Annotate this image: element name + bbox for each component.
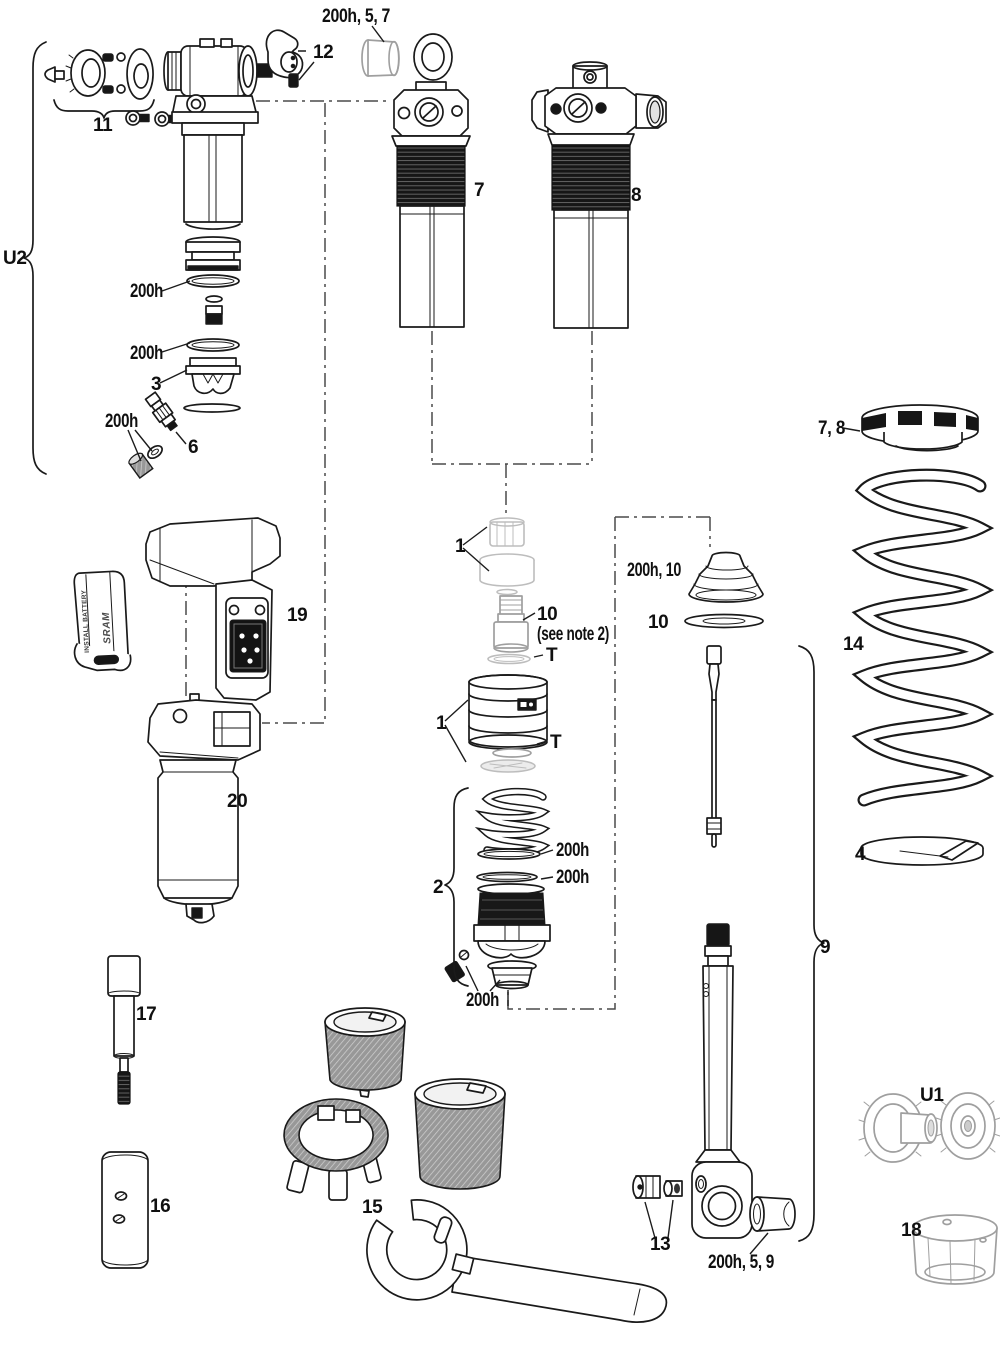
label-1-body: 1 — [436, 713, 447, 734]
top-cap-1 — [480, 518, 534, 595]
rebound-spring — [487, 792, 543, 852]
bracket-u2 — [24, 42, 46, 474]
shaft-tool-17 — [108, 956, 140, 1104]
small-valve-parts — [206, 296, 222, 324]
aircan-top-cap — [186, 237, 240, 270]
label-17: 17 — [136, 1004, 156, 1025]
valve-6 — [144, 391, 180, 433]
damper-body-1 — [469, 675, 547, 749]
spring-retainer-4 — [861, 837, 983, 865]
needle-shaft — [707, 646, 721, 847]
label-3: 3 — [151, 374, 161, 395]
grub-screw — [289, 74, 298, 87]
label-18: 18 — [901, 1220, 921, 1241]
label-16: 16 — [150, 1196, 170, 1217]
oring-200h-lower — [187, 339, 239, 351]
label-1-top: 1 — [455, 536, 466, 557]
label-2: 2 — [433, 877, 443, 898]
seal-t-upper — [488, 655, 530, 664]
label-15: 15 — [362, 1197, 383, 1218]
label-bushing-top: 200h, 5, 7 — [322, 6, 390, 27]
adjuster-bushing-13 — [664, 1181, 682, 1196]
exploded-parts-diagram: INSTALL BATTERY SRAM — [0, 0, 1000, 1351]
label-200h-a: 200h — [130, 281, 163, 302]
label-11: 11 — [93, 115, 113, 136]
damper-piston — [474, 884, 550, 958]
preload-collar-7-8 — [862, 405, 978, 451]
shock-wrench-15 — [351, 1185, 667, 1322]
contact-pad — [230, 620, 266, 672]
remote-lever-12 — [266, 30, 302, 87]
oring-200h-upper — [187, 275, 239, 287]
label-200h-d: 200h — [556, 840, 589, 861]
knurled-cup-tool-a — [325, 1008, 405, 1097]
control-module-19 — [146, 518, 280, 700]
piston-3 — [186, 358, 240, 393]
remote-shock-assembly — [164, 39, 272, 229]
label-t-lower: T — [550, 732, 562, 753]
label-200h-e: 200h — [556, 867, 589, 888]
damper-shaft-assembly-9 — [692, 924, 752, 1238]
label-200h-c: 200h — [105, 411, 138, 432]
eyelet-bushing-bottom — [750, 1197, 795, 1231]
label-10-disc: 10 — [648, 612, 668, 633]
knurled-cup-tool-b — [415, 1079, 505, 1189]
label-13: 13 — [650, 1234, 670, 1255]
label-7: 7 — [474, 180, 484, 201]
label-u2: U2 — [3, 248, 27, 269]
seal-t-lower — [481, 749, 535, 772]
sleeve-tool-16 — [102, 1152, 148, 1268]
label-14: 14 — [843, 634, 864, 655]
label-6: 6 — [188, 437, 198, 458]
battery-brand-text: SRAM — [101, 612, 114, 644]
label-19: 19 — [287, 605, 307, 626]
label-20: 20 — [227, 791, 247, 812]
eyelet-bushing-top — [362, 40, 399, 76]
diagram-canvas: INSTALL BATTERY SRAM — [0, 0, 1000, 1351]
label-200h-f: 200h — [466, 990, 499, 1011]
coil-spring-14 — [864, 475, 980, 800]
label-t-upper: T — [546, 645, 558, 666]
rebound-adjuster-10 — [494, 596, 528, 652]
label-12: 12 — [313, 42, 333, 63]
label-4: 4 — [855, 844, 866, 865]
seal-bellows — [689, 553, 763, 603]
label-10: 10 — [537, 604, 557, 625]
mounting-collar-18 — [913, 1215, 997, 1284]
adjuster-nut-13 — [633, 1176, 660, 1198]
label-u1: U1 — [920, 1085, 944, 1106]
castellated-ring-tool — [284, 1099, 388, 1200]
label-8: 8 — [631, 185, 641, 206]
label-7-8: 7, 8 — [818, 418, 845, 439]
detent-ball — [460, 951, 469, 960]
shock-body-7 — [392, 34, 470, 327]
oring-200h-2-lower — [477, 873, 537, 882]
shock-body-8 — [532, 62, 666, 328]
seal-disc-10 — [685, 615, 763, 628]
thin-seal-ring — [184, 404, 240, 412]
label-9: 9 — [820, 937, 830, 958]
oring-200h-2-upper — [478, 849, 540, 859]
label-bushing-bottom: 200h, 5, 9 — [708, 1252, 774, 1273]
mounting-bolt — [126, 111, 149, 125]
label-200h-b: 200h — [130, 343, 163, 364]
label-10-note: (see note 2) — [537, 624, 609, 645]
label-bellows: 200h, 10 — [627, 560, 681, 581]
battery-cover: INSTALL BATTERY SRAM — [70, 571, 131, 673]
